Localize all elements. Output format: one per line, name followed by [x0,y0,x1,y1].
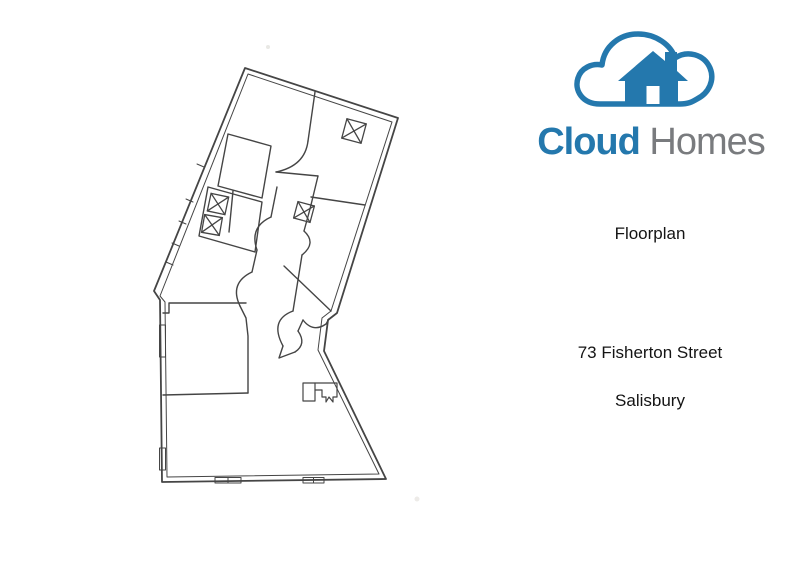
floorplan-inner-wall [160,74,392,477]
brand-name-cloud: Cloud [537,121,640,163]
scan-smudge [266,45,270,49]
floorplan-image [130,10,450,515]
brand-name-homes: Homes [649,121,764,163]
address-line-2: Salisbury [500,391,800,411]
skylight-x-icon [202,215,223,236]
floorplan-partitions [163,92,365,395]
stair-detail [303,383,337,402]
cloud-homes-logo: Cloud Homes [520,18,782,148]
skylight-x-icon [342,119,366,143]
skylight-x-icon [207,193,228,214]
document-type-label: Floorplan [500,224,800,244]
address-line-1: 73 Fisherton Street [500,343,800,363]
skylight-x-icon [294,202,315,223]
cloud-house-icon [520,18,782,122]
brand-name: Cloud Homes [520,122,782,162]
skylight-symbols [202,119,367,236]
window-markings [160,164,325,483]
floorplan-outer-wall [154,68,398,482]
scan-smudge [415,497,420,502]
floorplan-page: Cloud Homes Floorplan 73 Fisherton Stree… [0,0,800,565]
